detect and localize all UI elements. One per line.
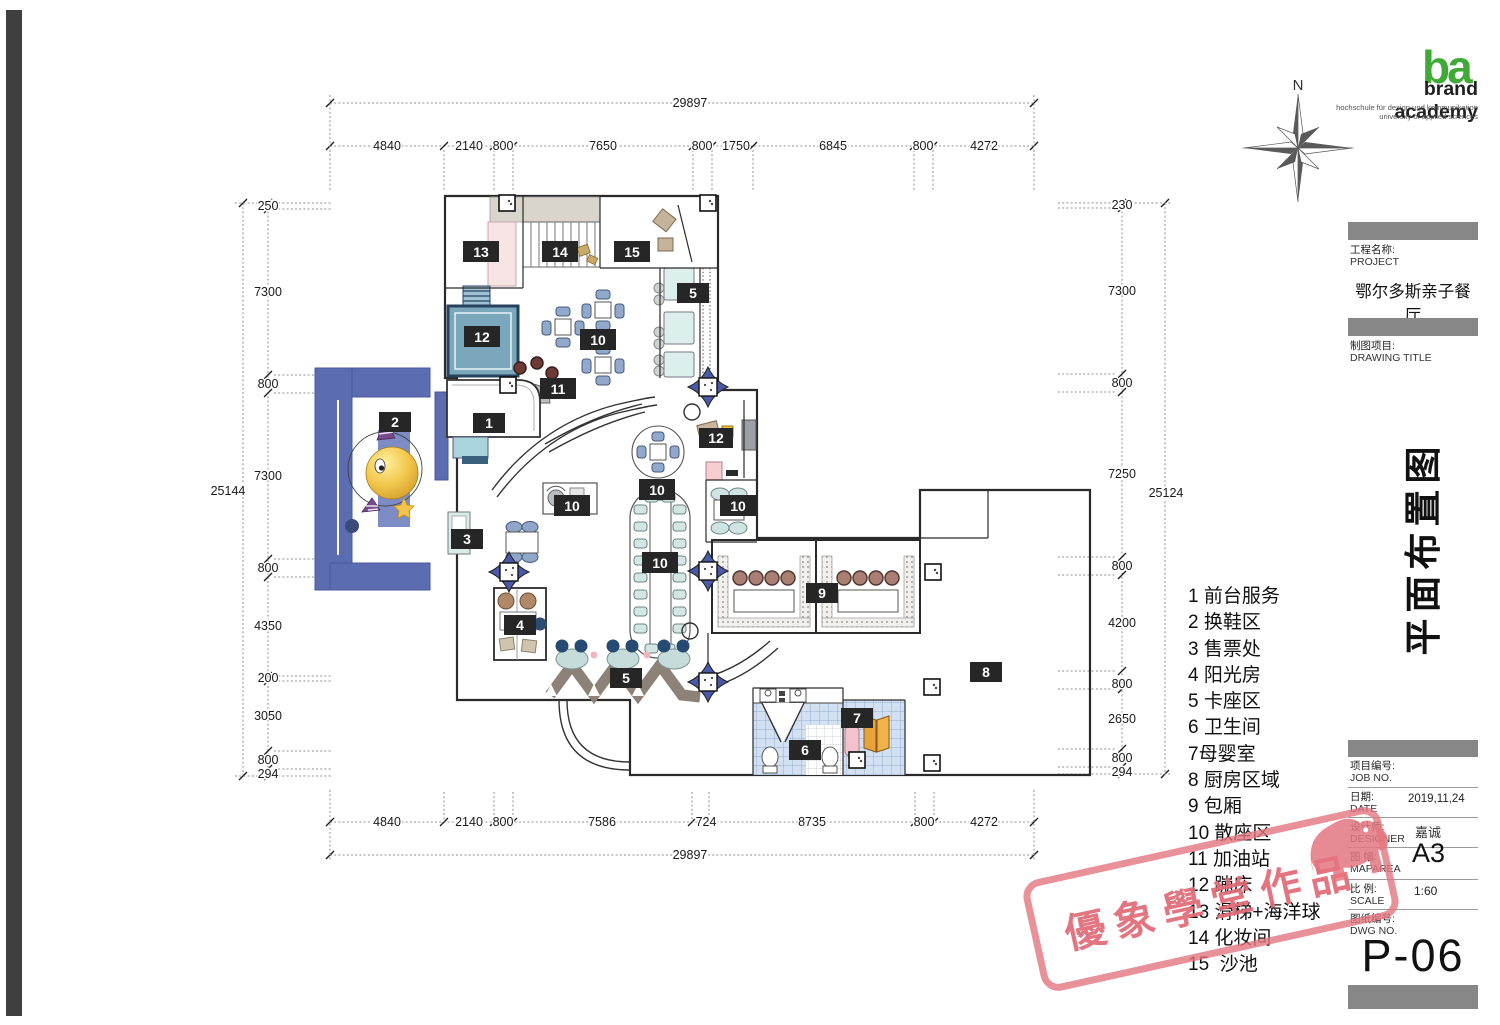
legend-item: 4 阳光房 [1188, 663, 1488, 689]
dim-left-seg: 250 [258, 199, 279, 213]
dim-right-seg: 4200 [1108, 616, 1136, 630]
dim-right-total: 25124 [1149, 486, 1184, 500]
dim-bottom-seg: 800 [914, 815, 935, 829]
room-label: 13 [473, 244, 489, 260]
room-label: 2 [391, 414, 399, 430]
dim-top-total: 29897 [673, 96, 708, 110]
room-label: 10 [730, 498, 746, 514]
dim-bottom-seg: 7586 [588, 815, 616, 829]
dim-top-seg: 2140 [455, 139, 483, 153]
dim-left-seg: 800 [258, 561, 279, 575]
room-label: 1 [485, 415, 493, 431]
dimension-top: 29897 4840 2140 800 7650 800 1750 6845 8… [326, 95, 1038, 192]
dim-top-seg: 800 [493, 139, 514, 153]
sandpit-furniture [653, 205, 692, 262]
entrance-dot [345, 519, 359, 533]
dim-left-seg: 7300 [254, 469, 282, 483]
dim-left-seg: 3050 [254, 709, 282, 723]
dim-right-seg: 7250 [1108, 467, 1136, 481]
legend-item: 6 卫生间 [1188, 715, 1488, 741]
room-label: 5 [689, 285, 697, 301]
legend-item: 1 前台服务 [1188, 584, 1488, 610]
dim-left-seg: 294 [258, 767, 279, 781]
dim-right-seg: 7300 [1108, 284, 1136, 298]
legend-item: 8 厨房区域 [1188, 768, 1488, 794]
compass-north-label: N [1293, 77, 1304, 94]
dim-right-seg: 294 [1112, 765, 1133, 779]
dimension-right: 25124 230 7300 800 7250 800 4200 800 265… [1058, 198, 1183, 779]
legend-item: 15 沙池 [1188, 952, 1488, 978]
dim-right-seg: 800 [1112, 376, 1133, 390]
dim-bottom-total: 29897 [673, 848, 708, 862]
drawing-title-label-en: DRAWING TITLE [1350, 352, 1432, 365]
room-label: 6 [801, 742, 809, 758]
room-label: 15 [624, 244, 640, 260]
room-label: 7 [853, 710, 861, 726]
logo-tagline-2: university of applied sciences [1318, 112, 1478, 121]
room-label: 10 [590, 332, 606, 348]
dim-bottom-seg: 8735 [798, 815, 826, 829]
round-table [632, 426, 684, 478]
dim-bottom-seg: 4840 [373, 815, 401, 829]
room-label: 14 [552, 244, 568, 260]
room-label: 10 [652, 555, 668, 571]
floor-plan: 13 14 15 5 12 10 11 2 1 12 10 10 10 3 10… [315, 195, 1090, 775]
dim-bottom-seg: 800 [493, 815, 514, 829]
restrooms [753, 688, 905, 775]
room-label: 4 [516, 617, 524, 633]
project-label-cn: 工程名称: [1350, 244, 1395, 257]
room-label: 3 [463, 531, 471, 547]
dim-right-seg: 800 [1112, 559, 1133, 573]
compass-rose: N [1242, 77, 1354, 202]
room-label: 10 [649, 482, 665, 498]
room-label: 10 [564, 498, 580, 514]
dim-top-seg: 6845 [819, 139, 847, 153]
dimension-left: 25144 250 7300 800 7300 800 4350 200 305… [211, 199, 332, 781]
room-label: 12 [708, 430, 724, 446]
dim-left-total: 25144 [211, 484, 246, 498]
dim-right-seg: 2650 [1108, 712, 1136, 726]
dim-left-seg: 800 [258, 753, 279, 767]
dim-right-seg: 800 [1112, 751, 1133, 765]
legend-item: 2 换鞋区 [1188, 610, 1488, 636]
dim-top-seg: 800 [913, 139, 934, 153]
room-label: 8 [982, 664, 990, 680]
dim-right-seg: 800 [1112, 677, 1133, 691]
dim-bottom-seg: 2140 [455, 815, 483, 829]
dim-left-seg: 4350 [254, 619, 282, 633]
logo-tagline-1: hochschule für design und kommunikation [1318, 103, 1478, 112]
dim-left-seg: 200 [258, 671, 279, 685]
title-block-bar [1348, 318, 1478, 336]
room-label: 9 [818, 585, 826, 601]
dim-left-seg: 7300 [254, 285, 282, 299]
project-label-en: PROJECT [1350, 256, 1399, 269]
dim-bottom-seg: 4272 [970, 815, 998, 829]
legend-item: 3 售票处 [1188, 637, 1488, 663]
room-label: 5 [622, 670, 630, 686]
dim-left-seg: 800 [258, 377, 279, 391]
dim-top-seg: 7650 [589, 139, 617, 153]
dim-top-seg: 1750 [722, 139, 750, 153]
dim-top-seg: 4840 [373, 139, 401, 153]
drawing-title-label-cn: 制图项目: [1350, 340, 1395, 353]
dimension-bottom: 29897 4840 2140 800 7586 724 8735 800 42… [326, 790, 1038, 862]
drawing-sheet: 29897 4840 2140 800 7650 800 1750 6845 8… [0, 0, 1500, 1025]
title-block-bar [1348, 222, 1478, 240]
elephant-icon [1285, 785, 1404, 904]
title-block-bar [1348, 985, 1478, 1009]
dim-bottom-seg: 724 [696, 815, 717, 829]
legend-item: 7母婴室 [1188, 742, 1488, 768]
door-panel [877, 716, 889, 752]
dim-top-seg: 4272 [970, 139, 998, 153]
long-table [630, 490, 690, 658]
dim-right-seg: 230 [1112, 198, 1133, 212]
legend-item: 5 卡座区 [1188, 689, 1488, 715]
room-label: 11 [551, 381, 566, 397]
dim-top-seg: 800 [692, 139, 713, 153]
room-label: 12 [474, 329, 490, 345]
